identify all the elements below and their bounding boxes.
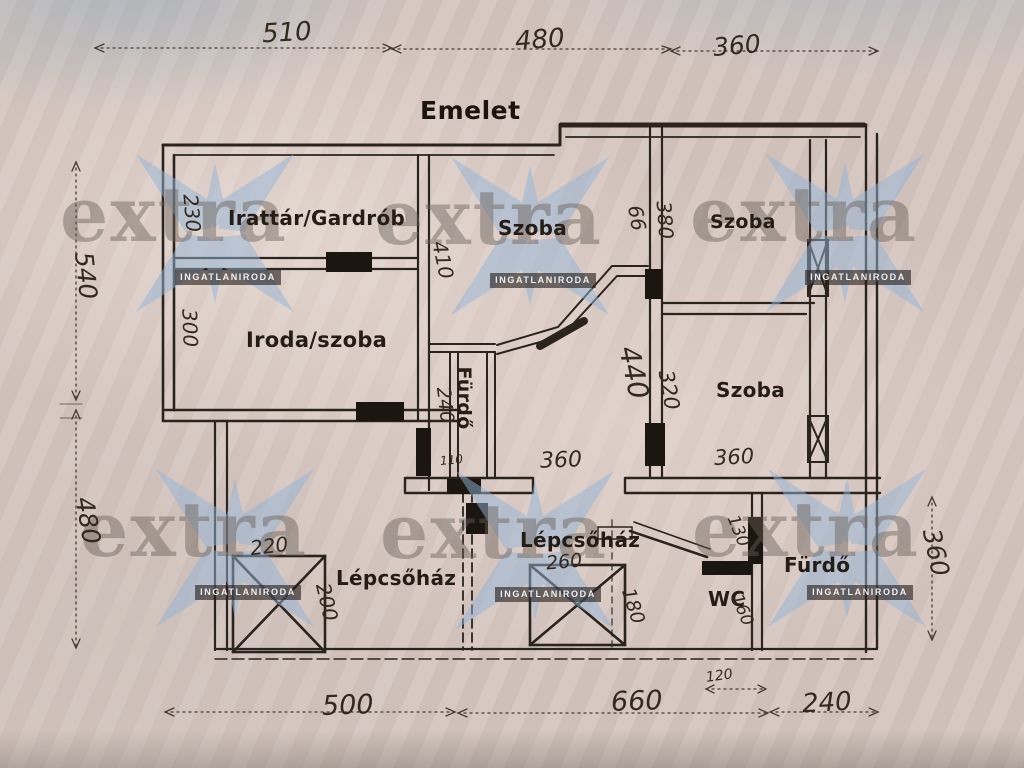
- dim-top-480: 480: [514, 23, 566, 56]
- dim-300: 300: [177, 298, 203, 359]
- dim-left-540: 540: [68, 244, 103, 307]
- room-label-szoba-middle: Szoba: [498, 216, 567, 240]
- floorplan-photo: extra INGATLANIRODA extra INGATLANIRODA: [0, 0, 1024, 768]
- dim-110: 110: [439, 452, 463, 468]
- room-label-furdo-right: Fürdő: [784, 553, 850, 577]
- dim-230: 230: [177, 182, 206, 244]
- dim-bottom-500: 500: [321, 689, 374, 722]
- dim-bottom-240: 240: [801, 687, 852, 720]
- room-label-iroda-szoba: Iroda/szoba: [246, 328, 387, 352]
- room-label-irattar-gardrob: Irattár/Gardrób: [228, 206, 405, 230]
- door-jambs: [326, 252, 763, 575]
- dim-360-middle: 360: [540, 447, 583, 473]
- dim-360-right: 360: [713, 444, 754, 470]
- dim-top-510: 510: [261, 17, 312, 50]
- page-title: Emelet: [420, 96, 521, 125]
- room-label-lepcsohaz-left: Lépcsőház: [336, 566, 456, 590]
- room-label-szoba-bottom-right: Szoba: [716, 378, 785, 402]
- dim-380: 380: [651, 189, 679, 251]
- dim-220: 220: [249, 532, 290, 560]
- dim-bottom-660: 660: [610, 685, 663, 718]
- dim-260: 260: [545, 549, 583, 574]
- dim-top-360: 360: [712, 29, 762, 62]
- room-label-lepcsohaz-middle: Lépcsőház: [520, 528, 640, 552]
- room-label-szoba-top-right: Szoba: [710, 211, 776, 233]
